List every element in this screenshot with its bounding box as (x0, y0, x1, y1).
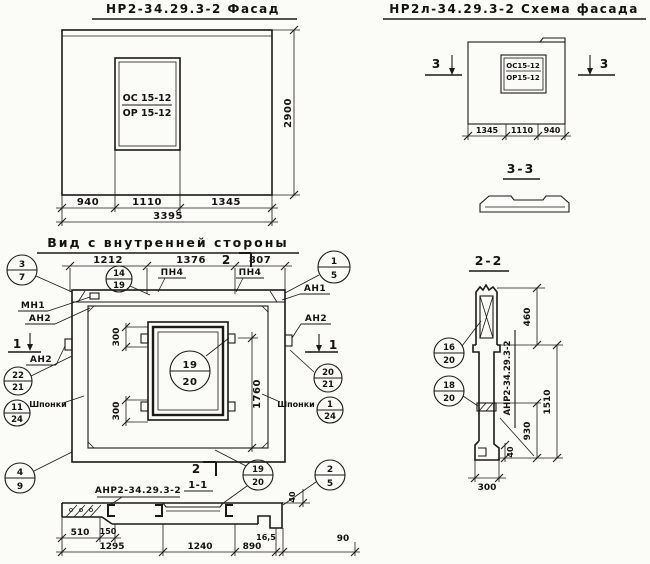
scheme-cut-mark-left: 3 (425, 55, 462, 75)
callout-19-20-bottom: 19 20 (215, 450, 273, 504)
section22-label-text: АНР2-34.29.3-2 (503, 341, 513, 416)
callout-22-21-top: 22 (12, 371, 24, 381)
pn4-left-text: ПН4 (161, 268, 184, 278)
dim-460-text: 460 (523, 308, 533, 327)
dim-1760: 1760 (238, 332, 263, 452)
an2-label-right: АН2 (292, 314, 331, 338)
scheme-dim-1345: 1345 (476, 126, 499, 135)
callout-16-20-bot: 20 (443, 356, 455, 366)
dim-1240-text: 1240 (187, 542, 212, 552)
shponki-right-text: Шпонки (277, 400, 314, 409)
inner-view: Вид с внутренней стороны 1212 1376 807 2… (4, 235, 350, 505)
an1-label: АН1 (282, 284, 330, 300)
dim-890-text: 890 (243, 542, 262, 552)
section-1-1: 2 1-1 АНР2-34.29.3-2 (56, 462, 360, 556)
inner-cut1-left: 1 (8, 333, 41, 352)
facade-title: НР2-34.29.3-2 Фасад (106, 2, 280, 16)
section11-profile (62, 503, 283, 528)
dim-1760-text: 1760 (252, 379, 263, 409)
facade-window-mark-top: ОС 15-12 (123, 93, 172, 104)
callout-2-5-top: 2 (327, 465, 333, 475)
dim-300-upper-text: 300 (112, 328, 122, 347)
scheme-dim-940: 940 (544, 126, 561, 135)
callout-4-9-bot: 9 (17, 482, 23, 492)
mn1-text: МН1 (21, 301, 45, 311)
section11-title: 1-1 (188, 480, 208, 491)
pn4-right-text: ПН4 (239, 268, 262, 278)
inner-dim-807: 807 (249, 255, 271, 266)
pn4-label-right: ПН4 (236, 268, 264, 292)
inner-dim-1212: 1212 (93, 255, 123, 266)
dim-165-text: 16,5 (256, 533, 276, 542)
callout-2-5-bot: 5 (327, 479, 333, 489)
scheme-cut-mark-right: 3 (578, 55, 615, 75)
dim-300-upper: 300 (112, 323, 148, 351)
dim-90-text: 90 (337, 534, 350, 544)
drawing-sheet: НР2-34.29.3-2 Фасад ОС 15-12 ОР 15-12 94… (0, 0, 650, 564)
an2-left-top-text: АН2 (29, 314, 51, 324)
callout-22-21-bot: 21 (12, 383, 24, 393)
facade-window-mark-bot: ОР 15-12 (123, 108, 172, 119)
facade-dim-1110: 1110 (132, 197, 162, 208)
callout-4-9-top: 4 (17, 468, 23, 478)
callout-19-20-window: 19 20 (170, 338, 229, 391)
dim-40-bottom-text: 40 (288, 491, 297, 503)
shponki-left-text: Шпонки (29, 400, 66, 409)
right-edge-anchor (285, 335, 292, 346)
inner-cut1-right: 1 (305, 334, 338, 352)
an2-right-text: АН2 (305, 314, 327, 324)
an2-left-mid-text: АН2 (30, 355, 52, 365)
callout-1-5-top: 1 (331, 257, 337, 267)
callout-20-21-top: 20 (322, 368, 334, 378)
facade-dim-total: 3395 (153, 211, 183, 222)
pn4-label-left: ПН4 (158, 268, 186, 292)
an1-text: АН1 (304, 284, 326, 294)
facade-dim-1345: 1345 (211, 197, 241, 208)
callout-1-24-top: 1 (327, 400, 333, 410)
facade-dim-940: 940 (77, 197, 99, 208)
callout-4-9: 4 9 (5, 452, 72, 493)
cut1-left-label: 1 (13, 337, 21, 351)
section11-dims: 510 150 1295 1240 890 16,5 90 (56, 517, 360, 556)
scheme-title: НР2л-34.29.3-2 Схема фасада (389, 2, 639, 16)
callout-16-20-top: 16 (443, 343, 455, 353)
callout-20-21-bot: 21 (322, 380, 334, 390)
inner-title: Вид с внутренней стороны (47, 235, 288, 250)
mn1-anchor-plate (90, 293, 99, 299)
inner-panel-outline (72, 290, 285, 462)
facade-view: НР2-34.29.3-2 Фасад ОС 15-12 ОР 15-12 94… (56, 2, 300, 226)
cut3-right-label: 3 (600, 57, 608, 71)
section11-label: АНР2-34.29.3-2 (95, 486, 181, 505)
section22-title: 2-2 (475, 253, 504, 268)
callout-19-20-win-top: 19 (183, 360, 198, 371)
callout-18-20-bot: 20 (443, 394, 455, 404)
callout-11-24-bot: 24 (11, 415, 23, 425)
panel-drawing-svg: НР2-34.29.3-2 Фасад ОС 15-12 ОР 15-12 94… (0, 0, 650, 564)
callout-19-20-bot-top: 19 (252, 465, 264, 475)
callout-19-20-bot-bot: 20 (252, 478, 264, 488)
callout-3-7-bot: 7 (19, 273, 25, 283)
mn1-label: МН1 (18, 297, 90, 311)
facade-window (115, 58, 180, 150)
cut2-top-label: 2 (222, 253, 230, 267)
scheme-panel-outline (468, 42, 565, 124)
scheme-window-mark-bot: ОР15-12 (506, 74, 540, 82)
dim-300-lower-text: 300 (112, 402, 122, 421)
section33-profile (480, 196, 569, 212)
callout-1-5-bot: 5 (331, 271, 337, 281)
callout-19-20-win-bot: 20 (183, 377, 198, 388)
dim-510-text: 510 (71, 528, 90, 538)
dim-1295-text: 1295 (99, 542, 124, 552)
callout-1-24-bot: 24 (324, 412, 336, 422)
callout-18-20-top: 18 (443, 381, 455, 391)
scheme-dim-1110: 1110 (511, 126, 534, 135)
section-2-2: 2-2 АНР2-34.29.3-2 (434, 253, 563, 493)
cut3-left-label: 3 (432, 57, 440, 71)
callout-20-21: 20 21 (290, 350, 342, 392)
dim-1510-text: 1510 (543, 389, 553, 414)
callout-1-24-shponki: Шпонки 1 24 (262, 394, 343, 423)
inner-dim-1376: 1376 (176, 255, 206, 266)
cut1-right-label: 1 (329, 338, 337, 352)
scheme-window-mark-top: ОС15-12 (506, 62, 540, 70)
callout-3-7: 3 7 (7, 255, 72, 292)
callout-11-24-top: 11 (11, 403, 23, 413)
dim-40-22-text: 40 (506, 446, 515, 458)
section11-label-text: АНР2-34.29.3-2 (95, 486, 181, 496)
facade-dim-height: 2900 (283, 98, 294, 128)
dim-930-text: 930 (523, 422, 533, 441)
dim-300-22-text: 300 (478, 483, 497, 493)
callout-14-19-top: 14 (113, 269, 125, 279)
dim-150-text: 150 (100, 527, 117, 536)
callout-3-7-top: 3 (19, 260, 25, 270)
section11-cut2: 2 (192, 462, 216, 476)
facade-scheme-view: НР2л-34.29.3-2 Схема фасада ОС15-12 ОР15… (383, 2, 646, 140)
cut2-bottom-label: 2 (192, 462, 200, 476)
left-edge-anchor (65, 339, 72, 350)
section11-dim-40: 40 (283, 489, 310, 507)
section-3-3: 3-3 (480, 161, 569, 212)
callout-18-20: 18 20 (434, 376, 478, 406)
section33-title: 3-3 (507, 161, 536, 176)
